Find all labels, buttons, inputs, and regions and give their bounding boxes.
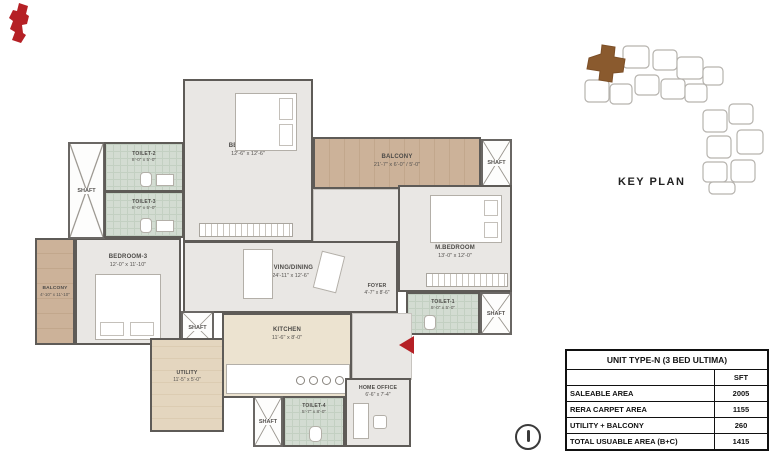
shaft-label: SHAFT: [486, 160, 506, 166]
room-home-office: HOME OFFICE 6'-6" x 7'-4": [345, 378, 411, 447]
room-label: UTILITY: [152, 370, 222, 377]
room-dims: 8'-0" x 5'-0": [106, 158, 182, 164]
stove-icon: [296, 376, 344, 385]
floor-plan-page: BALCONY 4'-10" x 11'-10" BEDROOM-3 12'-0…: [0, 0, 771, 466]
table-row: RERA CARPET AREA 1155: [567, 402, 767, 418]
room-dims: 21'-7" x 6'-0" / 5'-0": [315, 162, 479, 169]
shaft-label: SHAFT: [76, 188, 96, 194]
room-kitchen: KITCHEN 11'-6" x 8'-0": [222, 313, 352, 398]
sink-icon: [156, 220, 174, 232]
bed-icon: [430, 195, 502, 243]
key-plan-label: KEY PLAN: [618, 176, 685, 188]
passage: [313, 189, 400, 243]
room-label: TOILET-4: [285, 403, 343, 410]
room-label: KITCHEN: [224, 327, 350, 335]
room-toilet-4: TOILET-4 5'-7" x 8'-0": [283, 396, 345, 447]
table-cell: UTILITY + BALCONY: [567, 418, 715, 433]
dining-table-icon: [243, 249, 273, 299]
shaft-label: SHAFT: [187, 325, 207, 331]
room-label: HOME OFFICE: [347, 385, 409, 392]
room-balcony-top: BALCONY 21'-7" x 6'-0" / 5'-0": [313, 137, 481, 189]
room-living-dining: LIVING/DINING 24'-11" x 12'-6": [183, 241, 398, 313]
room-label: M.BEDROOM: [400, 245, 510, 253]
shaft-bottom: SHAFT: [253, 396, 283, 447]
wc-icon: [424, 315, 436, 330]
room-dims: 9'-0" x 5'-0": [408, 306, 478, 312]
unit-marker-icon: [8, 2, 30, 44]
room-bedroom-3: BEDROOM-3 12'-0" x 11'-10": [75, 238, 181, 345]
table-cell: TOTAL USUABLE AREA (B+C): [567, 434, 715, 449]
room-dims: 8'-0" x 5'-0": [106, 206, 182, 212]
table-cell: RERA CARPET AREA: [567, 402, 715, 417]
room-dims: 6'-6" x 7'-4": [347, 392, 409, 399]
room-label: TOILET-3: [106, 199, 182, 206]
room-dims: 13'-0" x 12'-0": [400, 253, 510, 260]
room-dims: 11'-6" x 8'-0": [224, 335, 350, 342]
room-toilet-2: TOILET-2 8'-0" x 5'-0": [104, 142, 184, 192]
room-label: BEDROOM-3: [77, 254, 179, 262]
wardrobe-icon: [426, 273, 508, 287]
room-dims: 12'-0" x 11'-10": [77, 262, 179, 269]
wardrobe-icon: [199, 223, 293, 237]
sofa-icon: [313, 251, 345, 294]
table-row: TOTAL USUABLE AREA (B+C) 1415: [567, 434, 767, 449]
room-label: LIVING/DINING: [185, 265, 396, 273]
room-bedroom-2: BEDROOM-2 12'-6" x 12'-6": [183, 79, 313, 242]
wc-icon: [140, 172, 152, 187]
shaft-label: SHAFT: [258, 419, 278, 425]
room-master-bedroom: M.BEDROOM 13'-0" x 12'-0": [398, 185, 512, 292]
table-cell: 1415: [715, 434, 767, 449]
room-label: TOILET-1: [408, 299, 478, 306]
table-cell: SALEABLE AREA: [567, 386, 715, 401]
table-cell: 2005: [715, 386, 767, 401]
table-row: SFT: [567, 370, 767, 386]
room-toilet-1: TOILET-1 9'-0" x 5'-0": [406, 292, 480, 335]
shaft-right: SHAFT: [480, 292, 512, 335]
highlighted-unit: [587, 45, 625, 82]
table-cell: 260: [715, 418, 767, 433]
wc-icon: [309, 426, 322, 442]
room-dims: 4'-10" x 11'-10": [37, 292, 73, 298]
bed-icon: [235, 93, 297, 151]
wc-icon: [140, 218, 152, 233]
room-label: TOILET-2: [106, 151, 182, 158]
chair-icon: [373, 415, 387, 429]
room-dims: 11'-5" x 5'-0": [152, 377, 222, 384]
room-dims: 5'-7" x 8'-0": [285, 410, 343, 416]
table-row: UTILITY + BALCONY 260: [567, 418, 767, 434]
shaft-label: SHAFT: [486, 311, 506, 317]
room-balcony-left: BALCONY 4'-10" x 11'-10": [35, 238, 75, 345]
table-row: SALEABLE AREA 2005: [567, 386, 767, 402]
area-table: UNIT TYPE-N (3 BED ULTIMA) SFT SALEABLE …: [565, 349, 769, 451]
area-table-title: UNIT TYPE-N (3 BED ULTIMA): [567, 351, 767, 370]
sink-icon: [156, 174, 174, 186]
shaft-top-right: SHAFT: [481, 139, 512, 187]
north-indicator-icon: [515, 424, 541, 450]
table-cell: [567, 370, 715, 385]
table-cell: 1155: [715, 402, 767, 417]
desk-icon: [353, 403, 369, 439]
key-plan-map: [575, 32, 771, 196]
room-dims: 24'-11" x 12'-6": [185, 273, 396, 280]
shaft-left: SHAFT: [68, 142, 105, 239]
entry-arrow-icon: [399, 336, 414, 354]
room-label: BALCONY: [315, 154, 479, 162]
table-header-sft: SFT: [715, 370, 767, 385]
bed-icon: [95, 274, 161, 340]
room-toilet-3: TOILET-3 8'-0" x 5'-0": [104, 191, 184, 238]
room-label: BALCONY: [37, 286, 73, 292]
room-utility: UTILITY 11'-5" x 5'-0": [150, 338, 224, 432]
room-dims: 12'-6" x 12'-6": [185, 151, 311, 158]
